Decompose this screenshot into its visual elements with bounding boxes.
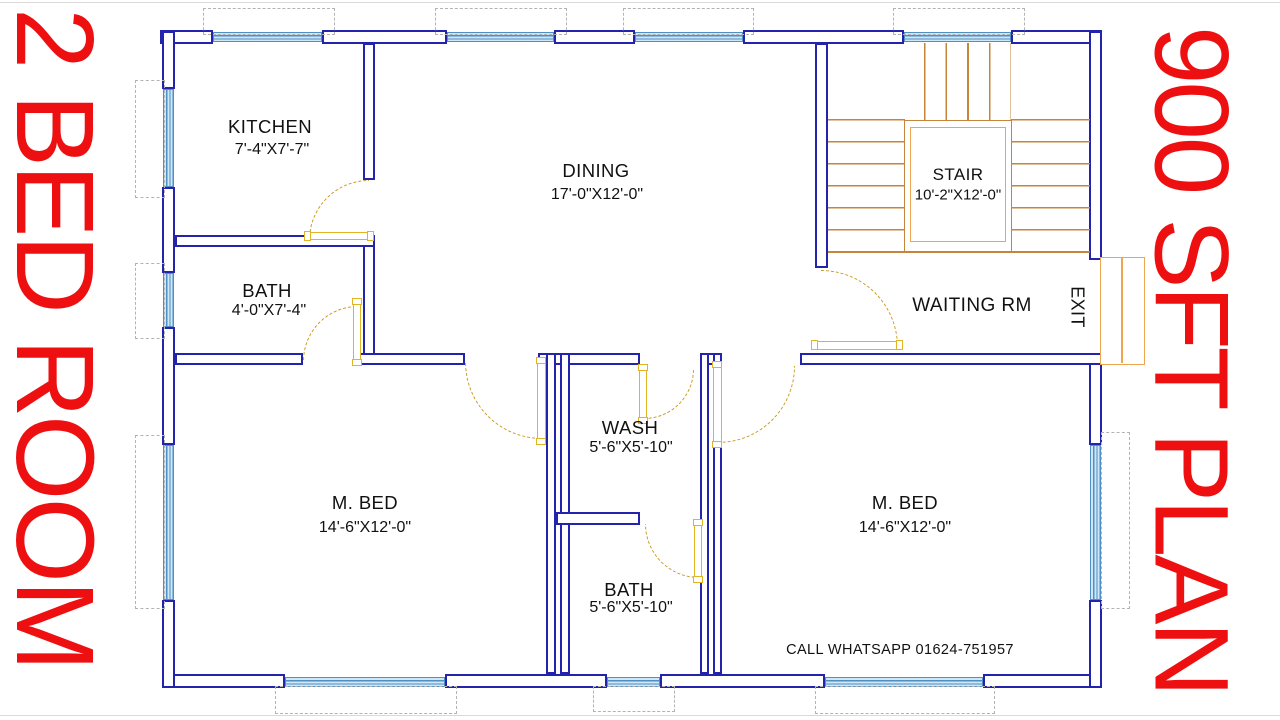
wall-right-upper — [1089, 31, 1102, 260]
wall-left-2 — [162, 187, 175, 273]
room-dims-bath-bottom: 5'-6"X5'-10" — [589, 599, 672, 617]
stair-winders-top — [904, 43, 1011, 121]
room-label-wash: WASH — [602, 417, 658, 439]
room-dims-bath-top: 4'-0"X7'-4" — [232, 302, 306, 320]
contact-text: CALL WHATSAPP 01624-751957 — [786, 642, 1014, 658]
room-label-waiting: WAITING RM — [912, 295, 1031, 317]
window-right-mbed — [1090, 445, 1101, 600]
stair-flight-left — [828, 119, 905, 253]
room-dims-mbed-right: 14'-6"X12'-0" — [859, 519, 951, 537]
dashbox-bottom-1 — [275, 686, 457, 714]
dashbox-top-3 — [623, 8, 754, 35]
stair-bottom-line — [828, 251, 1089, 253]
wall-wash-bath-divider — [556, 512, 640, 525]
door-leaf-waiting — [816, 341, 898, 350]
wall-wash-right — [700, 353, 709, 674]
door-leaf-mbed-left — [537, 362, 546, 440]
room-label-mbed-right: M. BED — [872, 492, 938, 514]
wall-midband-5 — [800, 353, 1102, 365]
wall-bottom-4 — [983, 674, 1102, 688]
room-label-mbed-left: M. BED — [332, 492, 398, 514]
room-label-kitchen: KITCHEN — [228, 116, 312, 138]
dashbox-top-2 — [435, 8, 567, 35]
floor-plan-sheet: 2 BED ROOM 900 SFT PLAN — [0, 0, 1280, 720]
wall-left-3 — [162, 327, 175, 445]
wall-bottom-1 — [162, 674, 285, 688]
room-label-exit: EXIT — [1067, 286, 1088, 328]
door-leaf-bath-bottom — [694, 524, 702, 578]
sheet-border-bottom — [0, 715, 1280, 716]
room-label-bath-top: BATH — [242, 280, 292, 302]
room-label-dining: DINING — [562, 160, 629, 182]
stair-flight-right — [1011, 119, 1090, 253]
banner-right: 900 SFT PLAN — [1142, 26, 1239, 694]
dashbox-left-1 — [135, 80, 165, 198]
wall-left-4 — [162, 600, 175, 688]
wall-right-lower-2 — [1089, 600, 1102, 688]
dashbox-right-1 — [1101, 432, 1130, 609]
door-leaf-kitchen — [309, 232, 369, 240]
wall-mbedleft-right-a — [546, 353, 556, 674]
room-dims-stair: 10'-2"X12'-0" — [915, 187, 1001, 204]
room-dims-wash: 5'-6"X5'-10" — [589, 439, 672, 457]
exit-stoop — [1100, 257, 1145, 365]
door-leaf-bath-top — [353, 303, 361, 361]
dashbox-left-3 — [135, 435, 165, 609]
door-leaf-mbed-right — [713, 366, 722, 443]
dashbox-left-2 — [135, 263, 165, 339]
dashbox-top-4 — [893, 8, 1025, 35]
wall-midband-2 — [355, 353, 465, 365]
wall-top-4 — [743, 30, 904, 44]
dashbox-bottom-2 — [593, 686, 675, 712]
room-dims-mbed-left: 14'-6"X12'-0" — [319, 519, 411, 537]
sheet-border-top — [0, 2, 1280, 3]
wall-bath-top-right — [363, 245, 375, 355]
dashbox-top-1 — [203, 8, 335, 35]
wall-top-2 — [322, 30, 447, 44]
door-leaf-wash — [639, 369, 647, 419]
wall-midband-1 — [175, 353, 303, 365]
wall-kitchen-divider — [363, 43, 375, 180]
room-dims-kitchen: 7'-4"X7'-7" — [235, 141, 309, 159]
dashbox-bottom-3 — [815, 686, 995, 714]
room-label-bath-bottom: BATH — [604, 579, 654, 601]
exit-stoop-divider — [1121, 258, 1123, 363]
room-dims-dining: 17'-0"X12'-0" — [551, 186, 643, 204]
wall-bottom-3 — [660, 674, 825, 688]
banner-left: 2 BED ROOM — [4, 8, 105, 669]
room-label-stair: STAIR — [933, 165, 984, 185]
wall-bottom-2 — [445, 674, 607, 688]
wall-stair-left — [815, 43, 828, 268]
